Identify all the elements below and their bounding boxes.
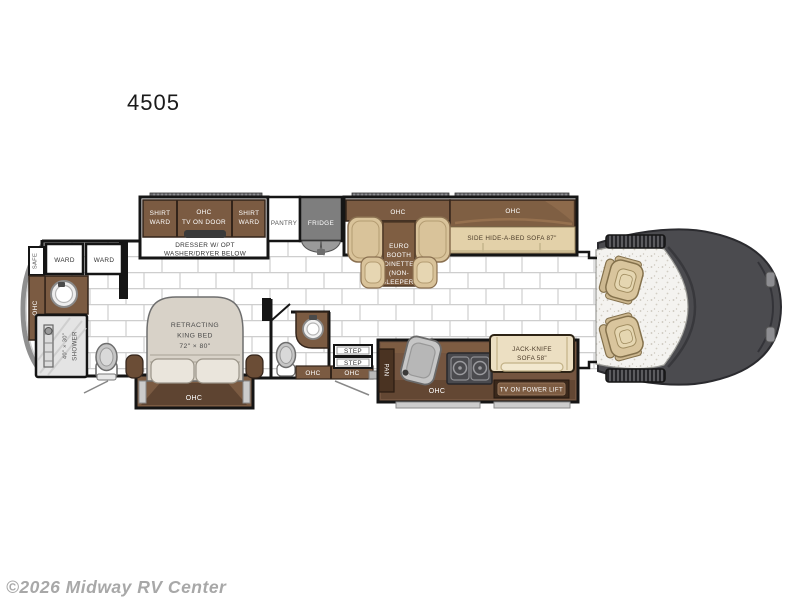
dinette-chair-right: [413, 257, 437, 288]
step-2-label: STEP: [344, 360, 362, 367]
dinette-bench-right: [415, 217, 450, 262]
bed-label-line1: RETRACTING: [171, 322, 219, 329]
shower-label-line2: 40" × 30": [63, 333, 69, 359]
ward-1-label: WARD: [54, 257, 75, 264]
jackknife-label-line2: SOFA 58": [517, 355, 547, 362]
pillow-right: [196, 359, 239, 383]
shower: SHOWER 40" × 30": [36, 315, 87, 377]
bed-ohc-label: OHC: [186, 395, 203, 402]
fridge-label: FRIDGE: [308, 220, 334, 227]
nightstand-left: [126, 355, 143, 378]
pantry-label: PANTRY: [271, 220, 297, 227]
refrigerator: FRIDGE: [300, 197, 342, 255]
ohc-tv-line2: TV ON DOOR: [182, 219, 226, 226]
safe-label: SAFE: [33, 253, 39, 269]
step-1-label: STEP: [344, 348, 362, 355]
rear-ohc-label: OHC: [32, 300, 39, 315]
pillow-left: [151, 359, 194, 383]
model-number: 4505: [127, 90, 180, 115]
bedroom-tv: [262, 298, 271, 321]
dinette-label-line4: (NON-: [389, 270, 409, 277]
shirt-ward-right-line1: SHIRT: [239, 210, 260, 217]
dinette-label-line2: BOOTH: [387, 252, 412, 259]
mirror-top: [766, 272, 775, 287]
watermark: ©2026 Midway RV Center: [6, 577, 227, 597]
galley-slide: PAN OHC JACK-KNIFE SOFA 58" TV ON POWE: [378, 335, 578, 408]
sofa-ohc-label: OHC: [505, 208, 520, 215]
hide-a-bed-sofa-label: SIDE HIDE-A-BED SOFA 87": [467, 235, 556, 242]
dinette-bench-left: [348, 217, 383, 262]
rear-vanity-sink: [51, 281, 77, 307]
shirt-ward-left-line1: SHIRT: [150, 210, 171, 217]
dinette-label-line1: EURO: [389, 243, 409, 250]
dinette-label-line3: DINETTE: [384, 261, 414, 268]
ohc-tv-line1: OHC: [196, 209, 211, 216]
dresser-line2: WASHER/DRYER BELOW: [164, 251, 247, 258]
tv-on-door: [184, 230, 226, 238]
entry-ohc-label: OHC: [344, 370, 359, 377]
jackknife-sofa: JACK-KNIFE SOFA 58": [490, 335, 574, 372]
bed-label-line2: KING BED: [177, 333, 213, 340]
shirt-ward-left-line2: WARD: [150, 219, 171, 226]
galley-ohc-label: OHC: [429, 388, 446, 395]
shower-head-icon: [45, 328, 52, 335]
shirt-ward-right-line2: WARD: [239, 219, 260, 226]
pantry: PANTRY: [268, 197, 300, 241]
dinette-ohc-label: OHC: [390, 209, 405, 216]
slide-skirt-right: [494, 402, 570, 408]
pan-label: PAN: [383, 364, 389, 377]
floorplan-page: SHIRT WARD OHC TV ON DOOR SHIRT WARD DRE…: [0, 0, 800, 600]
mid-toilet: [277, 343, 296, 377]
front-cab: [596, 229, 781, 384]
bath-ohc-label: OHC: [305, 370, 320, 377]
ward-2-label: WARD: [94, 257, 115, 264]
dinette-label-line5: SLEEPER): [382, 279, 416, 286]
nightstand-right: [246, 355, 263, 378]
bed-label-line3: 72" × 80": [179, 343, 210, 350]
jackknife-label-line1: JACK-KNIFE: [512, 346, 552, 353]
tv-power-lift: TV ON POWER LIFT: [494, 380, 569, 398]
rear-toilet: [96, 344, 117, 381]
front-tire-top: [606, 235, 665, 248]
mirror-bottom: [766, 327, 775, 342]
dresser-line1: DRESSER W/ OPT: [175, 242, 235, 249]
tv-lift-label: TV ON POWER LIFT: [500, 387, 563, 394]
floorplan-canvas: SHIRT WARD OHC TV ON DOOR SHIRT WARD DRE…: [0, 0, 800, 600]
shower-label-line1: SHOWER: [72, 331, 79, 361]
dinette-chair-left: [361, 257, 385, 288]
bedroom-slide: SHIRT WARD OHC TV ON DOOR SHIRT WARD DRE…: [140, 197, 268, 258]
cooktop: [447, 353, 492, 384]
slide-skirt-left: [396, 402, 480, 408]
entry-steps: STEP STEP: [334, 345, 372, 368]
front-tire-bottom: [606, 369, 665, 382]
